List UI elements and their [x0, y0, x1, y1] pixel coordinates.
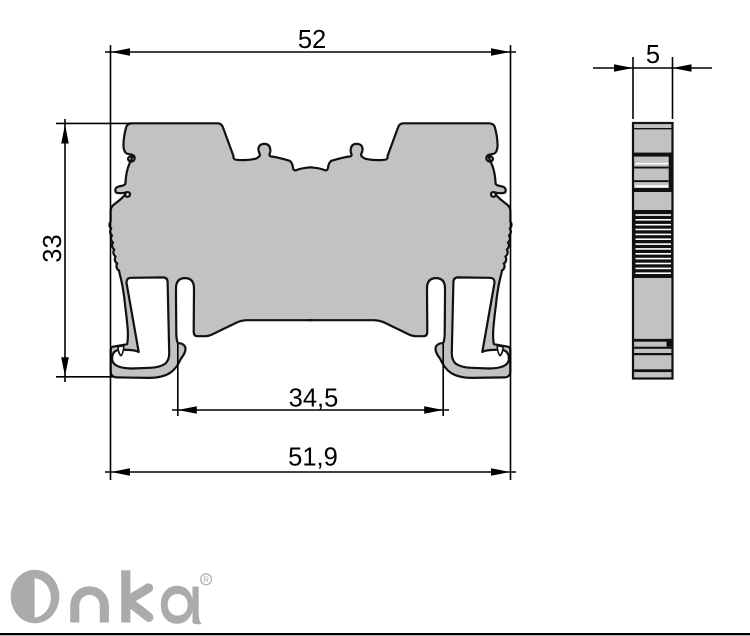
svg-text:51,9: 51,9	[288, 444, 338, 472]
svg-text:52: 52	[298, 26, 326, 54]
svg-text:R: R	[203, 576, 209, 585]
svg-text:34,5: 34,5	[289, 385, 339, 413]
svg-text:5: 5	[646, 41, 660, 69]
svg-text:33: 33	[39, 234, 67, 262]
